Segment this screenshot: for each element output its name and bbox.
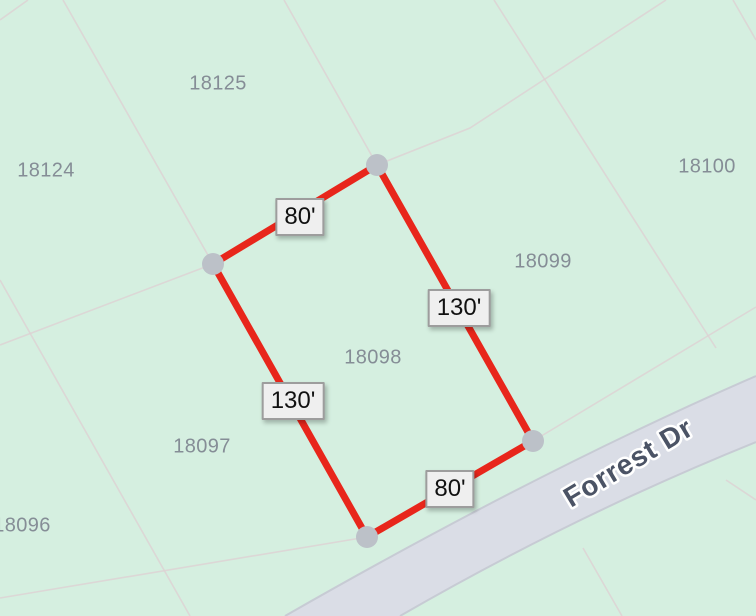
- parcel-label-18098: 18098: [344, 347, 402, 370]
- parcel-boundary-line: [0, 537, 367, 598]
- parcel-boundary-line: [583, 548, 622, 616]
- parcel-boundary-line: [733, 0, 756, 40]
- parcel-boundary-lines: [0, 0, 756, 616]
- parcel-vertex-dot: [522, 430, 544, 452]
- dimension-label-left: 130': [262, 382, 325, 420]
- parcel-label-18096: 18096: [0, 515, 51, 538]
- dimension-label-top: 80': [275, 198, 324, 236]
- parcel-boundary-line: [63, 0, 213, 264]
- parcel-label-18097: 18097: [173, 436, 231, 459]
- parcel-boundary-line: [0, 280, 190, 616]
- parcel-vertex-dot: [356, 526, 378, 548]
- parcel-vertex-dot: [202, 253, 224, 275]
- parcel-boundary-line: [0, 0, 28, 20]
- parcel-boundary-line: [377, 0, 666, 165]
- parcel-label-18099: 18099: [514, 251, 572, 274]
- parcel-label-18100: 18100: [678, 156, 736, 179]
- parcel-label-18125: 18125: [189, 73, 247, 96]
- map-canvas[interactable]: Forrest Dr 18125 18124 18100 18099 18098…: [0, 0, 756, 616]
- map-layer: Forrest Dr: [0, 0, 756, 616]
- parcel-boundary-line: [726, 480, 756, 500]
- parcel-label-18124: 18124: [17, 160, 75, 183]
- dimension-label-right: 130': [428, 289, 491, 327]
- dimension-label-bottom: 80': [425, 470, 474, 508]
- parcel-vertex-dot: [366, 154, 388, 176]
- parcel-boundary-line: [284, 0, 377, 165]
- parcel-boundary-line: [0, 264, 213, 345]
